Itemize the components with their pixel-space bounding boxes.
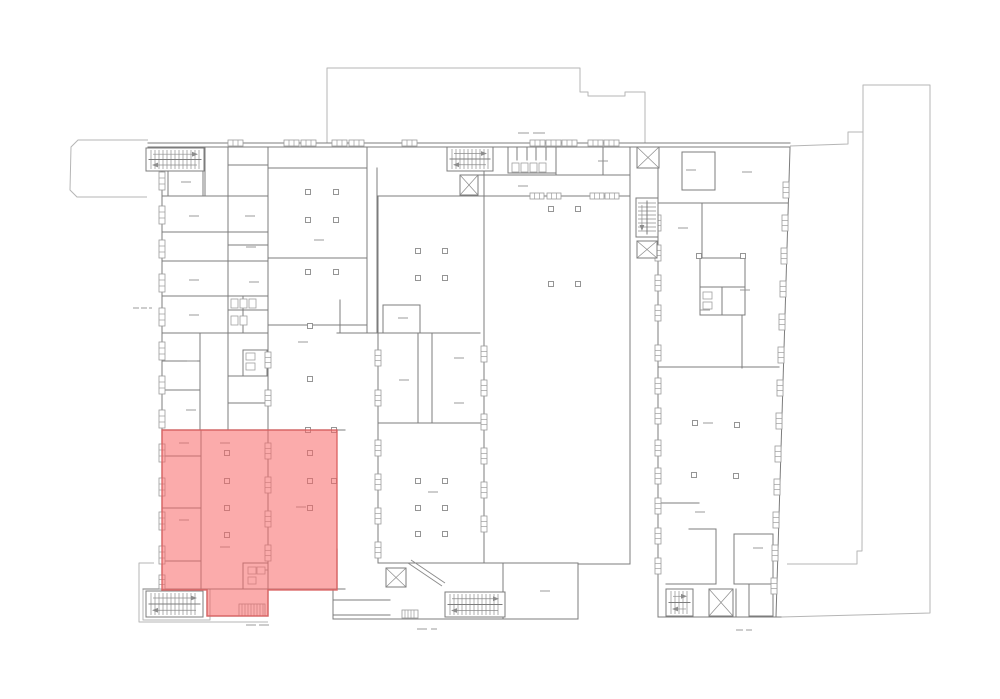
- elevator-icon: [637, 241, 657, 258]
- building-outline: [781, 85, 930, 617]
- window-icon: [546, 140, 561, 146]
- column-marker: [734, 474, 739, 479]
- window-icon: [774, 479, 780, 495]
- highlight-layer: [162, 430, 337, 616]
- window-icon: [655, 498, 661, 514]
- column-marker: [416, 479, 421, 484]
- floor-plan-drawing: [0, 0, 1000, 699]
- column-marker: [576, 282, 581, 287]
- fixture-icon: [246, 363, 255, 370]
- window-icon: [159, 206, 165, 224]
- staircase-icon: [146, 591, 203, 617]
- elevator-icon: [637, 147, 659, 168]
- column-marker: [697, 254, 702, 259]
- column-marker: [416, 276, 421, 281]
- window-icon: [265, 352, 271, 368]
- fixture-icon: [703, 292, 712, 299]
- column-marker: [692, 473, 697, 478]
- window-icon: [349, 140, 364, 146]
- window-icon: [159, 376, 165, 394]
- window-icon: [159, 240, 165, 258]
- column-marker: [443, 532, 448, 537]
- window-icon: [588, 140, 603, 146]
- window-icon: [655, 468, 661, 484]
- staircase-icon: [146, 148, 204, 171]
- elevator-layer: [386, 147, 733, 616]
- elevator-icon: [460, 175, 478, 195]
- column-marker: [693, 421, 698, 426]
- window-icon: [605, 193, 619, 199]
- column-marker: [334, 190, 339, 195]
- column-marker: [334, 218, 339, 223]
- column-marker: [443, 479, 448, 484]
- window-icon: [773, 512, 779, 528]
- window-icon: [159, 308, 165, 326]
- window-icon: [655, 275, 661, 291]
- window-icon: [375, 474, 381, 490]
- window-icon: [783, 182, 789, 198]
- window-icon: [301, 140, 316, 146]
- fixture-icon: [240, 316, 247, 325]
- window-icon: [604, 140, 619, 146]
- window-icon: [782, 215, 788, 231]
- window-icon: [375, 440, 381, 456]
- column-marker: [443, 249, 448, 254]
- window-icon: [265, 390, 271, 406]
- window-icon: [562, 140, 577, 146]
- column-marker: [443, 506, 448, 511]
- fixture-icon: [512, 163, 519, 172]
- column-marker: [735, 423, 740, 428]
- window-icon: [655, 440, 661, 456]
- window-icon: [780, 281, 786, 297]
- window-icon: [778, 347, 784, 363]
- window-icon: [655, 345, 661, 361]
- diagonal-layer: [408, 560, 445, 586]
- elevator-icon: [709, 589, 733, 616]
- window-icon: [402, 140, 417, 146]
- window-icon: [159, 342, 165, 360]
- fixture-icon: [231, 316, 238, 325]
- staircase-icon: [447, 147, 493, 171]
- window-icon: [159, 274, 165, 292]
- window-icon: [481, 516, 487, 532]
- fixture-icon: [530, 163, 537, 172]
- room: [383, 305, 420, 333]
- column-marker: [334, 270, 339, 275]
- window-icon: [590, 193, 604, 199]
- window-icon: [332, 140, 347, 146]
- column-marker: [308, 377, 313, 382]
- column-marker: [306, 270, 311, 275]
- building-outline: [70, 140, 148, 197]
- window-icon: [771, 578, 777, 594]
- window-icon: [481, 482, 487, 498]
- fixture-icon: [246, 353, 255, 360]
- column-marker: [549, 282, 554, 287]
- window-icon: [228, 140, 243, 146]
- window-icon: [481, 448, 487, 464]
- staircase-icon: [445, 592, 505, 617]
- window-icon: [779, 314, 785, 330]
- window-icon: [781, 248, 787, 264]
- room: [749, 584, 773, 616]
- window-icon: [772, 545, 778, 561]
- column-marker: [308, 324, 313, 329]
- staircase-icon: [666, 589, 693, 616]
- window-icon: [375, 350, 381, 366]
- room: [734, 534, 773, 584]
- fixture-icon: [539, 163, 546, 172]
- window-icon: [655, 408, 661, 424]
- column-marker: [306, 190, 311, 195]
- building-outline: [327, 68, 645, 143]
- window-icon: [655, 305, 661, 321]
- window-icon: [284, 140, 299, 146]
- window-icon: [530, 193, 544, 199]
- column-marker: [416, 249, 421, 254]
- highlighted-zone[interactable]: [162, 430, 337, 616]
- window-icon: [776, 413, 782, 429]
- fixture-icon: [249, 299, 256, 308]
- window-icon: [655, 528, 661, 544]
- window-icon: [481, 414, 487, 430]
- column-marker: [549, 207, 554, 212]
- column-marker: [741, 254, 746, 259]
- column-marker: [416, 506, 421, 511]
- column-marker: [306, 218, 311, 223]
- entrance-steps-icon: [402, 610, 418, 618]
- building-outline: [787, 132, 863, 564]
- window-icon: [530, 140, 545, 146]
- fixture-icon: [240, 299, 247, 308]
- window-icon: [775, 446, 781, 462]
- window-icon: [375, 542, 381, 558]
- column-marker: [576, 207, 581, 212]
- window-icon: [159, 172, 165, 190]
- window-icon: [655, 558, 661, 574]
- column-marker: [443, 276, 448, 281]
- window-icon: [655, 378, 661, 394]
- elevator-icon: [386, 568, 406, 587]
- window-icon: [481, 346, 487, 362]
- fixture-icon: [703, 302, 712, 309]
- window-icon: [481, 380, 487, 396]
- window-icon: [777, 380, 783, 396]
- staircase-icon: [636, 198, 658, 237]
- window-icon: [547, 193, 561, 199]
- fixture-icon: [231, 299, 238, 308]
- window-icon: [159, 410, 165, 428]
- room: [682, 152, 715, 190]
- window-icon: [375, 390, 381, 406]
- fixture-icon: [521, 163, 528, 172]
- floor-plan-viewport: [0, 0, 1000, 699]
- window-icon: [375, 508, 381, 524]
- column-marker: [416, 532, 421, 537]
